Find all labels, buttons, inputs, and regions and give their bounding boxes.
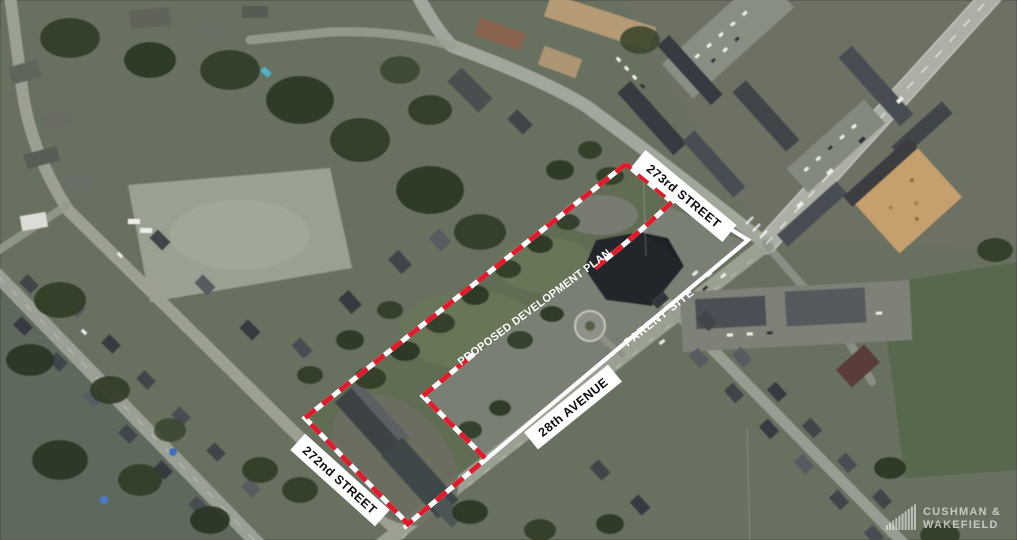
aerial-site-map: PROPOSED DEVELOPMENT PLAN PARENT SITE 27… [0,0,1017,540]
trampoline [169,448,177,456]
trampoline [100,496,108,504]
driveway-circle-island [585,321,595,331]
truck [140,228,152,233]
commercial-strip [680,280,913,352]
gravel-highlight [170,200,310,270]
logo-line1: CUSHMAN & [923,506,1001,518]
logo-line2: WAKEFIELD [923,519,999,531]
truck [128,219,140,224]
aerial-background [0,0,1017,540]
